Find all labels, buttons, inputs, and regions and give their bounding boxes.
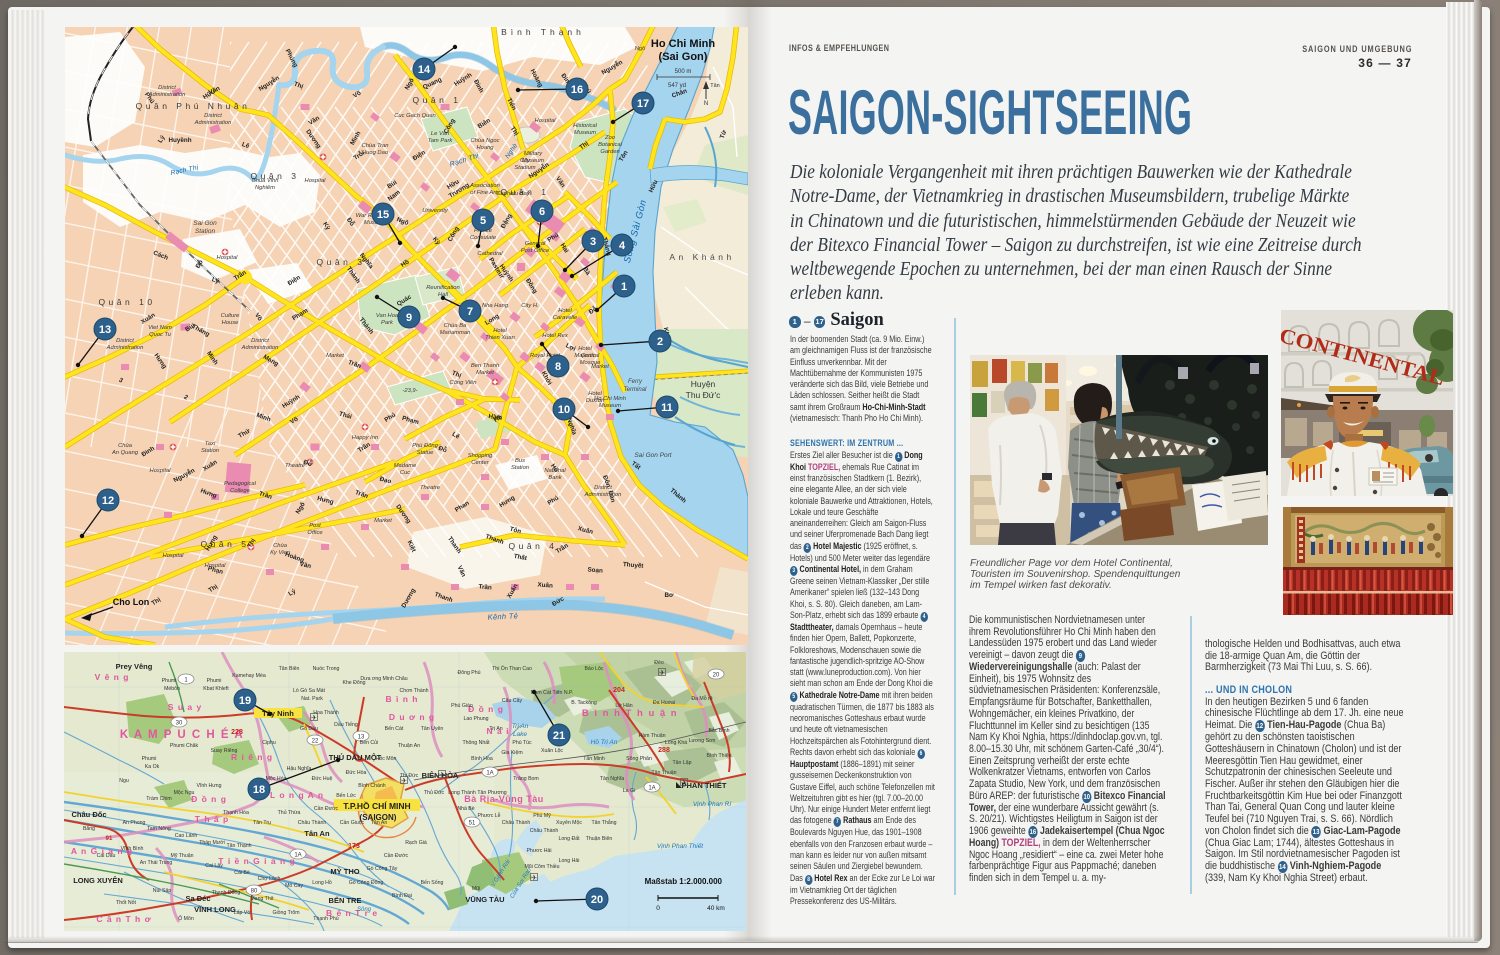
svg-text:Caphetu Bay: Caphetu Bay bbox=[496, 191, 531, 197]
svg-text:Administration: Administration bbox=[194, 120, 232, 126]
svg-text:Phú Mỹ: Phú Mỹ bbox=[533, 813, 551, 819]
svg-text:Đức Hòa: Đức Hòa bbox=[346, 770, 367, 776]
svg-text:Tân Thuận: Tân Thuận bbox=[652, 770, 677, 776]
svg-text:Thu Đứ'c: Thu Đứ'c bbox=[686, 390, 721, 400]
svg-text:204: 204 bbox=[613, 687, 625, 694]
svg-text:Bình Thạnh: Bình Thạnh bbox=[501, 27, 585, 37]
svg-text:Trị An: Trị An bbox=[489, 726, 502, 732]
svg-text:Maßstab 1:2.000.000: Maßstab 1:2.000.000 bbox=[645, 877, 723, 886]
svg-text:1A: 1A bbox=[648, 786, 655, 792]
svg-text:Tam Nông: Tam Nông bbox=[147, 826, 171, 832]
svg-text:General: General bbox=[525, 241, 546, 247]
svg-text:Gò Công Đông: Gò Công Đông bbox=[349, 880, 384, 886]
svg-text:City H.: City H. bbox=[521, 303, 538, 309]
svg-text:Châu Thành: Châu Thành bbox=[298, 820, 327, 826]
svg-text:✈: ✈ bbox=[681, 780, 687, 787]
svg-text:20: 20 bbox=[591, 894, 603, 906]
svg-text:Sai Gon: Sai Gon bbox=[193, 220, 217, 227]
svg-text:Cần Đước: Cần Đước bbox=[384, 853, 409, 859]
svg-text:Ho Chi Minh: Ho Chi Minh bbox=[651, 38, 715, 50]
svg-text:Thuận An: Thuận An bbox=[398, 743, 420, 749]
svg-text:Pedagogical: Pedagogical bbox=[224, 481, 257, 487]
svg-text:Phú Giáo: Phú Giáo bbox=[451, 703, 473, 709]
svg-text:Botanical: Botanical bbox=[598, 142, 623, 148]
svg-text:Museum: Museum bbox=[574, 130, 596, 136]
svg-text:Hotel: Hotel bbox=[578, 346, 592, 352]
svg-text:Thạnh Phú: Thạnh Phú bbox=[313, 916, 338, 922]
svg-text:17: 17 bbox=[637, 98, 649, 110]
svg-text:Đa Mỗ rê: Đa Mỗ rê bbox=[691, 695, 712, 702]
svg-text:Xuân Lộc: Xuân Lộc bbox=[541, 748, 563, 754]
svg-text:T.P.HỒ CHÍ MINH: T.P.HỒ CHÍ MINH bbox=[343, 800, 410, 811]
svg-text:Sông Phân: Sông Phân bbox=[626, 756, 652, 762]
svg-text:Gò Dầu: Gò Dầu bbox=[300, 726, 318, 732]
svg-text:Kbat Khleft: Kbat Khleft bbox=[203, 686, 229, 692]
svg-text:An Thái Trung: An Thái Trung bbox=[140, 860, 173, 866]
svg-text:C ầ n T h ơ: C ầ n T h ơ bbox=[96, 914, 151, 924]
svg-text:Xuân: Xuân bbox=[537, 581, 553, 589]
svg-text:Cuc: Cuc bbox=[400, 470, 410, 476]
svg-text:Thi Ón Than Cao: Thi Ón Than Cao bbox=[492, 665, 532, 672]
svg-text:Long Đất: Long Đất bbox=[558, 836, 580, 842]
svg-text:Chùa: Chùa bbox=[273, 543, 288, 549]
svg-text:Kênh Tẻ: Kênh Tẻ bbox=[487, 611, 518, 622]
svg-text:Hospital: Hospital bbox=[305, 178, 327, 184]
svg-text:Bình Chánh: Bình Chánh bbox=[358, 783, 386, 789]
svg-text:Nghiêm: Nghiêm bbox=[255, 185, 275, 191]
svg-text:Huyềnh: Huyềnh bbox=[168, 135, 191, 144]
svg-text:Consulate: Consulate bbox=[470, 235, 497, 241]
svg-text:Thông Nhất: Thông Nhất bbox=[462, 740, 490, 746]
svg-text:Theatre: Theatre bbox=[285, 463, 306, 469]
svg-text:173: 173 bbox=[348, 843, 360, 850]
svg-text:An Phong: An Phong bbox=[123, 820, 146, 826]
svg-text:Tân Phương: Tân Phương bbox=[477, 790, 506, 796]
svg-text:Mariamman: Mariamman bbox=[440, 330, 471, 336]
svg-text:Trị An: Trị An bbox=[512, 723, 529, 730]
svg-text:Mỏ Cay: Mỏ Cay bbox=[285, 882, 303, 889]
svg-text:L o n g A n: L o n g A n bbox=[270, 790, 324, 800]
svg-text:Market: Market bbox=[476, 370, 494, 376]
svg-text:Long Khá: Long Khá bbox=[665, 740, 687, 746]
svg-text:4: 4 bbox=[619, 240, 626, 252]
svg-text:Công Viên: Công Viên bbox=[450, 380, 477, 386]
svg-text:Nhà Bè: Nhà Bè bbox=[457, 806, 474, 812]
svg-text:0: 0 bbox=[656, 905, 660, 912]
svg-text:Gò Công Tây: Gò Công Tây bbox=[367, 866, 398, 872]
svg-text:Bình Thiện: Bình Thiện bbox=[707, 753, 732, 759]
svg-text:Châu Thành: Châu Thành bbox=[502, 820, 531, 826]
svg-text:Market: Market bbox=[591, 364, 609, 370]
svg-text:Tân Trụ: Tân Trụ bbox=[253, 820, 271, 826]
svg-text:S u a y: S u a y bbox=[168, 702, 202, 712]
svg-text:14: 14 bbox=[418, 64, 431, 76]
svg-text:Dưa ơng Minh Châu: Dưa ơng Minh Châu bbox=[360, 676, 407, 682]
svg-text:Museum: Museum bbox=[599, 403, 621, 409]
svg-text:Station: Station bbox=[195, 228, 216, 235]
svg-text:Historical: Historical bbox=[573, 123, 598, 129]
svg-text:20: 20 bbox=[713, 673, 720, 679]
svg-text:Bến Lức: Bến Lức bbox=[336, 793, 356, 799]
svg-text:An Khánh: An Khánh bbox=[669, 252, 734, 262]
svg-text:Shopping: Shopping bbox=[468, 453, 493, 459]
svg-text:Nat. Park: Nat. Park bbox=[301, 696, 323, 702]
svg-text:40 km: 40 km bbox=[707, 905, 725, 912]
svg-text:Huyện: Huyện bbox=[691, 379, 716, 389]
svg-text:Quân 10: Quân 10 bbox=[98, 297, 155, 307]
svg-text:Thien Xuan: Thien Xuan bbox=[485, 335, 515, 341]
svg-text:Phươc Lễ: Phươc Lễ bbox=[477, 812, 500, 819]
svg-text:Market: Market bbox=[326, 353, 344, 359]
svg-text:Nuóc Trong: Nuóc Trong bbox=[313, 666, 340, 672]
svg-text:288: 288 bbox=[658, 747, 670, 754]
svg-text:Suay Riêng: Suay Riêng bbox=[211, 748, 238, 754]
svg-text:1: 1 bbox=[621, 281, 627, 293]
svg-text:Stadium: Stadium bbox=[514, 165, 535, 171]
svg-text:Mang Thít: Mang Thít bbox=[250, 896, 274, 902]
svg-text:Taxi: Taxi bbox=[205, 441, 216, 447]
svg-text:District: District bbox=[116, 338, 134, 344]
svg-text:18: 18 bbox=[253, 784, 265, 796]
svg-text:Station: Station bbox=[201, 448, 219, 454]
svg-text:Hospital: Hospital bbox=[163, 553, 185, 559]
svg-text:Hoang: Hoang bbox=[476, 145, 494, 151]
svg-text:Cần Giuộc: Cần Giuộc bbox=[340, 820, 365, 826]
svg-text:Lương Sơn: Lương Sơn bbox=[689, 738, 716, 744]
svg-text:Bến Cát: Bến Cát bbox=[385, 726, 404, 732]
svg-text:LONG XUYÊN: LONG XUYÊN bbox=[73, 876, 123, 885]
svg-text:Chùa Ngoc: Chùa Ngoc bbox=[470, 138, 499, 144]
svg-text:Van Hoa: Van Hoa bbox=[376, 313, 399, 319]
svg-text:Hóc Môn: Hóc Môn bbox=[376, 756, 397, 762]
svg-text:Quân 1: Quân 1 bbox=[413, 95, 462, 105]
svg-text:Viet Nam: Viet Nam bbox=[148, 325, 172, 331]
svg-text:Ben Thanh: Ben Thanh bbox=[471, 363, 499, 369]
svg-text:Đa Huơai: Đa Huơai bbox=[653, 700, 675, 706]
svg-text:Bus: Bus bbox=[515, 458, 525, 464]
svg-text:Tân Biên: Tân Biên bbox=[279, 666, 300, 672]
svg-text:College: College bbox=[230, 488, 250, 494]
svg-text:Rạch Giá: Rạch Giá bbox=[405, 840, 427, 846]
svg-text:Phú Túc: Phú Túc bbox=[512, 740, 532, 746]
svg-text:Dầu Tiếng: Dầu Tiếng bbox=[334, 722, 358, 728]
svg-text:6: 6 bbox=[539, 206, 545, 218]
svg-text:Phumi: Phumi bbox=[142, 756, 157, 762]
svg-text:51: 51 bbox=[469, 821, 476, 827]
svg-text:Sa Đéc: Sa Đéc bbox=[185, 894, 210, 903]
svg-text:B ì n h: B ì n h bbox=[386, 694, 419, 704]
svg-text:Administration: Administration bbox=[148, 92, 186, 98]
svg-text:K A M P U C H É A: K A M P U C H É A bbox=[120, 728, 244, 741]
svg-text:District: District bbox=[158, 85, 176, 91]
svg-text:Bến Củi: Bến Củi bbox=[360, 739, 378, 746]
svg-text:-23,9-: -23,9- bbox=[402, 388, 417, 394]
svg-text:Nam Cát Tiên N.P.: Nam Cát Tiên N.P. bbox=[531, 690, 574, 696]
svg-text:Tân Nghĩa: Tân Nghĩa bbox=[600, 776, 624, 782]
svg-text:91: 91 bbox=[106, 836, 113, 842]
svg-text:80: 80 bbox=[251, 889, 258, 895]
svg-text:District: District bbox=[251, 338, 269, 344]
svg-text:Hồ Trị An: Hồ Trị An bbox=[591, 737, 618, 746]
svg-text:Tân: Tân bbox=[710, 83, 719, 89]
svg-text:Tràm Chim: Tràm Chim bbox=[146, 796, 171, 802]
svg-text:Tân Minh: Tân Minh bbox=[583, 756, 605, 762]
svg-text:9: 9 bbox=[406, 312, 412, 324]
svg-text:Culture: Culture bbox=[221, 313, 240, 319]
svg-text:Tân Lập: Tân Lập bbox=[672, 760, 691, 766]
svg-text:✈: ✈ bbox=[439, 772, 445, 779]
svg-text:Tân Thắng: Tân Thắng bbox=[592, 819, 617, 826]
svg-text:Ngô: Ngô bbox=[635, 46, 645, 52]
svg-text:Hotel: Hotel bbox=[493, 328, 507, 334]
svg-text:Happy Inn: Happy Inn bbox=[352, 435, 378, 441]
svg-text:16: 16 bbox=[571, 84, 583, 96]
svg-text:Thủ Đức: Thủ Đức bbox=[424, 789, 445, 796]
svg-text:Chùa Ba: Chùa Ba bbox=[444, 323, 467, 329]
svg-text:La Gi: La Gi bbox=[623, 788, 635, 794]
svg-text:15: 15 bbox=[377, 209, 389, 221]
svg-text:Mộc Hóa: Mộc Hóa bbox=[266, 776, 287, 782]
svg-text:Vịnh Phan Rí: Vịnh Phan Rí bbox=[693, 801, 732, 808]
svg-text:Sông: Sông bbox=[357, 907, 372, 913]
svg-text:Chùa: Chùa bbox=[118, 443, 133, 449]
svg-text:Vịnh Phan Thiết: Vịnh Phan Thiết bbox=[657, 842, 704, 850]
svg-text:Bank: Bank bbox=[548, 475, 562, 481]
svg-text:Cuc Gach Quan: Cuc Gach Quan bbox=[394, 113, 436, 119]
svg-text:Phumi: Phumi bbox=[162, 678, 177, 684]
svg-text:Tân Uyên: Tân Uyên bbox=[421, 726, 444, 732]
svg-text:(Sai Gon): (Sai Gon) bbox=[659, 51, 708, 63]
svg-text:Trảng Bom: Trảng Bom bbox=[513, 776, 538, 782]
svg-text:Tân An: Tân An bbox=[304, 829, 330, 838]
svg-text:Mộc Ngu: Mộc Ngu bbox=[174, 790, 195, 796]
svg-text:Museum: Museum bbox=[522, 158, 544, 164]
svg-text:Theatre: Theatre bbox=[420, 485, 441, 491]
svg-text:Tân Thạnh: Tân Thạnh bbox=[227, 843, 252, 849]
svg-text:Quân 4: Quân 4 bbox=[509, 541, 558, 551]
svg-text:2: 2 bbox=[657, 336, 663, 348]
svg-text:Lớ Hãn: Lớ Hãn bbox=[615, 703, 632, 709]
svg-text:12: 12 bbox=[102, 495, 114, 507]
svg-text:11: 11 bbox=[661, 402, 673, 414]
svg-text:Mũi Côm Thiều: Mũi Côm Thiều bbox=[524, 864, 559, 870]
svg-text:✈: ✈ bbox=[659, 670, 665, 677]
svg-text:VĨNH LONG: VĨNH LONG bbox=[194, 905, 236, 914]
svg-text:Câu Cây: Câu Cây bbox=[502, 698, 523, 704]
svg-text:Cho Lon: Cho Lon bbox=[113, 597, 150, 607]
svg-text:✈: ✈ bbox=[531, 875, 537, 882]
svg-text:Bình Hòa: Bình Hòa bbox=[471, 756, 493, 762]
svg-text:Zoo: Zoo bbox=[604, 135, 616, 141]
svg-text:10: 10 bbox=[558, 404, 570, 416]
svg-text:Office: Office bbox=[307, 530, 323, 536]
svg-text:Long Hồ: Long Hồ bbox=[312, 880, 332, 886]
svg-text:Châu Đốc: Châu Đốc bbox=[71, 810, 106, 819]
svg-text:Phumi Châk: Phumi Châk bbox=[170, 743, 199, 749]
svg-text:Bình Đại: Bình Đại bbox=[392, 893, 412, 899]
svg-text:Giồng Trôm: Giồng Trôm bbox=[272, 910, 299, 916]
svg-text:District: District bbox=[594, 485, 612, 491]
svg-text:Ka Ok: Ka Ok bbox=[145, 764, 160, 770]
svg-text:Phù Đông: Phù Đông bbox=[412, 443, 439, 449]
svg-text:Ciphu: Ciphu bbox=[262, 740, 276, 746]
svg-text:Mébôn: Mébôn bbox=[164, 686, 180, 692]
svg-text:Caravelle: Caravelle bbox=[553, 315, 578, 321]
svg-text:Bến Sống: Bến Sống bbox=[421, 880, 444, 886]
svg-text:Tam Park: Tam Park bbox=[428, 138, 454, 144]
svg-text:Đức Huệ: Đức Huệ bbox=[312, 776, 333, 782]
svg-text:21: 21 bbox=[553, 730, 565, 742]
svg-text:Phumi: Phumi bbox=[207, 678, 222, 684]
svg-text:Post Office: Post Office bbox=[521, 248, 550, 254]
svg-text:Cần Đước: Cần Đước bbox=[314, 806, 339, 812]
svg-text:5: 5 bbox=[480, 215, 486, 227]
svg-text:Đông Phú: Đông Phú bbox=[457, 670, 480, 676]
svg-text:Thuận Biên: Thuận Biên bbox=[586, 836, 613, 842]
svg-text:Administration: Administration bbox=[106, 345, 144, 351]
svg-text:D u ơ n g: D u ơ n g bbox=[389, 712, 435, 722]
svg-text:B ì n h T h u ậ n: B ì n h T h u ậ n bbox=[582, 708, 678, 719]
svg-text:Kamehay Méa: Kamehay Méa bbox=[232, 673, 266, 679]
svg-text:Chùa Vinh: Chùa Vinh bbox=[252, 178, 279, 184]
svg-text:Thủ Thừa: Thủ Thừa bbox=[278, 809, 301, 816]
svg-text:Tây Ninh: Tây Ninh bbox=[262, 709, 294, 718]
svg-text:Lake: Lake bbox=[513, 731, 527, 738]
svg-text:Tháp Mười: Tháp Mười bbox=[199, 840, 225, 846]
svg-text:Station: Station bbox=[511, 465, 529, 471]
svg-text:✈: ✈ bbox=[311, 715, 317, 722]
svg-text:Bắng: Bắng bbox=[83, 825, 95, 832]
svg-text:Hotel: Hotel bbox=[558, 308, 572, 314]
svg-text:Prey Vêng: Prey Vêng bbox=[116, 662, 153, 671]
svg-text:Núi Sập: Núi Sập bbox=[153, 888, 172, 894]
svg-text:8: 8 bbox=[555, 361, 561, 373]
svg-text:Post: Post bbox=[309, 523, 321, 529]
svg-text:University: University bbox=[422, 208, 449, 214]
svg-text:500 m: 500 m bbox=[675, 69, 692, 75]
svg-text:Market: Market bbox=[374, 518, 392, 524]
svg-text:Lò Gò Sa Mát: Lò Gò Sa Mát bbox=[293, 688, 326, 694]
svg-text:Quoc Tu: Quoc Tu bbox=[149, 332, 172, 338]
svg-text:Hospital: Hospital bbox=[150, 468, 172, 474]
svg-text:Cái Bè: Cái Bè bbox=[234, 870, 250, 876]
svg-text:Thốt Nốt: Thốt Nốt bbox=[116, 900, 136, 906]
svg-text:Ferry: Ferry bbox=[628, 379, 643, 385]
svg-text:Bắc Bình: Bắc Bình bbox=[708, 727, 729, 734]
svg-text:District: District bbox=[204, 113, 222, 119]
svg-text:Huog Dao: Huog Dao bbox=[362, 150, 389, 156]
svg-text:Nha Hang: Nha Hang bbox=[482, 303, 509, 309]
svg-text:Terminal: Terminal bbox=[624, 387, 647, 393]
svg-text:Hospital: Hospital bbox=[535, 118, 557, 124]
svg-text:Phươc Hải: Phươc Hải bbox=[526, 848, 551, 854]
svg-text:Thanh Đông: Thanh Đông bbox=[212, 890, 241, 896]
svg-text:Đ ồ n g: Đ ồ n g bbox=[191, 794, 227, 804]
svg-text:✈: ✈ bbox=[401, 778, 407, 785]
svg-text:Gia Kiệm: Gia Kiệm bbox=[501, 750, 522, 756]
svg-text:Le Van: Le Van bbox=[431, 131, 449, 137]
svg-text:Quân 3: Quân 3 bbox=[317, 257, 366, 267]
svg-text:Ho Chi Minh: Ho Chi Minh bbox=[594, 396, 626, 402]
svg-text:Administration: Administration bbox=[584, 492, 622, 498]
svg-text:Cao Lãnh: Cao Lãnh bbox=[175, 833, 198, 839]
svg-text:22: 22 bbox=[312, 739, 319, 745]
svg-text:V ê n g: V ê n g bbox=[95, 672, 130, 682]
svg-text:Chùa Tran: Chùa Tran bbox=[362, 143, 389, 149]
svg-text:Association: Association bbox=[469, 183, 500, 189]
svg-text:13: 13 bbox=[99, 324, 111, 336]
svg-text:Châu Thành: Châu Thành bbox=[530, 828, 559, 834]
svg-text:Tân An: Tân An bbox=[371, 820, 388, 826]
svg-text:Center: Center bbox=[471, 460, 489, 466]
svg-text:Hotel Rex: Hotel Rex bbox=[542, 333, 569, 339]
svg-text:1A: 1A bbox=[486, 771, 493, 777]
svg-text:PHAN THIẾT: PHAN THIẾT bbox=[682, 780, 727, 790]
svg-text:Madame: Madame bbox=[394, 463, 417, 469]
svg-text:VŪNG TÀU: VŪNG TÀU bbox=[465, 895, 504, 904]
svg-text:Lao Phung: Lao Phung bbox=[463, 716, 488, 722]
svg-text:Soạn: Soạn bbox=[587, 566, 603, 574]
svg-text:Bơ: Bơ bbox=[664, 592, 674, 599]
svg-text:B. Tackông: B. Tackông bbox=[571, 700, 597, 706]
svg-text:Sai Gon Port: Sai Gon Port bbox=[634, 452, 672, 459]
svg-text:Majestic: Majestic bbox=[574, 353, 595, 359]
svg-text:19: 19 bbox=[239, 695, 251, 707]
svg-text:Thạnh Hóa: Thạnh Hóa bbox=[223, 810, 249, 816]
svg-text:Hospital: Hospital bbox=[217, 255, 239, 261]
svg-text:Hospital: Hospital bbox=[205, 563, 227, 569]
svg-text:Lấp Vò: Lấp Vò bbox=[234, 910, 251, 916]
svg-text:Cathedral: Cathedral bbox=[477, 251, 503, 257]
svg-text:Long Thành: Long Thành bbox=[448, 790, 476, 796]
svg-text:National: National bbox=[544, 468, 566, 474]
svg-text:Cái Dầu: Cái Dầu bbox=[97, 853, 116, 859]
svg-text:Long Hải: Long Hải bbox=[559, 858, 580, 864]
svg-text:N: N bbox=[704, 101, 708, 107]
svg-text:Ngu: Ngu bbox=[119, 778, 129, 784]
svg-text:Vĩnh Hưng: Vĩnh Hưng bbox=[196, 783, 221, 789]
svg-text:1A: 1A bbox=[294, 853, 301, 859]
svg-text:Hàm Thuận: Hàm Thuận bbox=[638, 733, 665, 739]
svg-text:Vĩnh Bình: Vĩnh Bình bbox=[121, 846, 144, 852]
svg-text:Chợ Lách: Chợ Lách bbox=[258, 876, 281, 882]
svg-text:7: 7 bbox=[467, 306, 473, 318]
svg-text:Ô Môn: Ô Môn bbox=[178, 915, 194, 922]
svg-text:MỲ THO: MỲ THO bbox=[330, 867, 359, 876]
svg-text:Mũi: Mũi bbox=[472, 886, 480, 892]
svg-text:Chơn Thành: Chơn Thành bbox=[400, 688, 429, 694]
svg-text:Hoa Thành: Hoa Thành bbox=[313, 710, 339, 716]
svg-text:Administration: Administration bbox=[241, 345, 279, 351]
svg-text:Military: Military bbox=[524, 151, 543, 157]
svg-text:Statue: Statue bbox=[417, 450, 435, 456]
svg-text:Đ ồ n g: Đ ồ n g bbox=[468, 704, 504, 714]
svg-text:T i ề n G i a n g: T i ề n G i a n g bbox=[218, 856, 295, 866]
svg-text:BẾN TRE: BẾN TRE bbox=[329, 895, 362, 905]
svg-text:Park: Park bbox=[381, 320, 394, 326]
svg-text:Đèo: Đèo bbox=[654, 660, 664, 666]
svg-text:Mỹ Thuận: Mỹ Thuận bbox=[171, 853, 194, 859]
svg-text:Ky Vien: Ky Vien bbox=[270, 550, 290, 556]
svg-text:Reunification: Reunification bbox=[426, 285, 460, 291]
svg-text:House: House bbox=[222, 320, 240, 326]
svg-text:228: 228 bbox=[231, 729, 243, 736]
svg-text:An Quang: An Quang bbox=[111, 450, 139, 456]
svg-text:Xuyên Mộc: Xuyên Mộc bbox=[556, 820, 582, 826]
svg-text:3: 3 bbox=[590, 236, 596, 248]
svg-text:Cai Lậy: Cai Lậy bbox=[205, 863, 223, 869]
svg-text:30: 30 bbox=[176, 721, 183, 727]
